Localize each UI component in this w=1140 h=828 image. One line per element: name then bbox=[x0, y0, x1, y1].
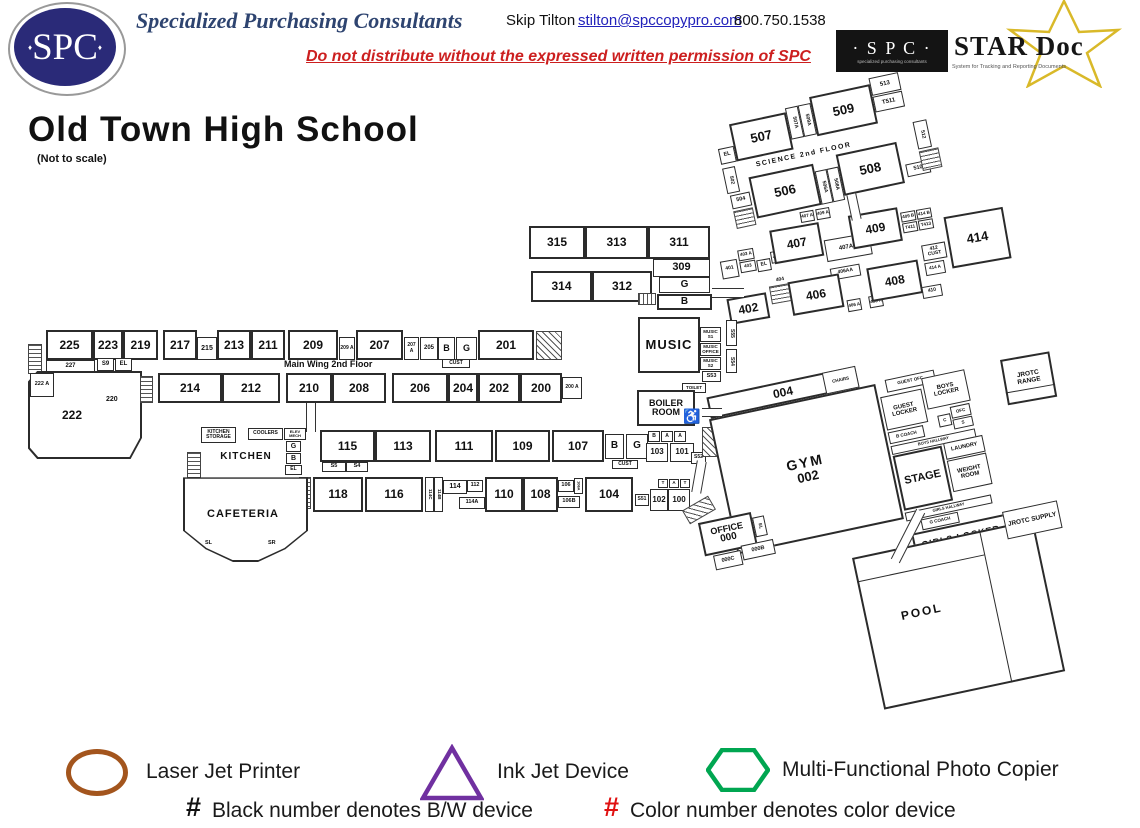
company-name: Specialized Purchasing Consultants bbox=[136, 8, 462, 34]
room-t-1: T bbox=[658, 479, 668, 488]
wheelchair-icon: ♿ bbox=[683, 408, 700, 425]
room-214: 214 bbox=[158, 373, 222, 403]
room-215: 215 bbox=[197, 337, 217, 360]
room-music-s1: MUSIC S1 bbox=[700, 327, 721, 342]
spc-logo-text: SPC bbox=[32, 29, 98, 66]
room-g-100: G bbox=[626, 434, 648, 459]
legend-inkjet-label: Ink Jet Device bbox=[497, 760, 629, 784]
room-313: 313 bbox=[585, 226, 648, 259]
room-t-2: T bbox=[680, 479, 690, 488]
room-music: MUSIC bbox=[638, 317, 700, 373]
room-el-kitchen: EL bbox=[285, 465, 302, 475]
room-202: 202 bbox=[478, 373, 520, 403]
legend-mfp-label: Multi-Functional Photo Copier bbox=[782, 758, 1059, 782]
room-414: 414 bbox=[943, 207, 1011, 269]
stairs[interactable] bbox=[638, 293, 656, 305]
room-315: 315 bbox=[529, 226, 585, 259]
room-401: 401 bbox=[720, 259, 740, 280]
spc-logo: ♦SPC♦ bbox=[8, 2, 126, 96]
room-music-s2: MUSIC S2 bbox=[700, 357, 721, 370]
legend-hash-black: # bbox=[186, 792, 201, 823]
room-a-small-2: A bbox=[674, 431, 686, 442]
distribution-warning: Do not distribute without the expressed … bbox=[306, 48, 811, 66]
contact-email-link[interactable]: stilton@spccopypro.com bbox=[578, 12, 742, 29]
stardoc-spc-text: · S P C · bbox=[852, 38, 931, 59]
stairs[interactable] bbox=[536, 331, 562, 360]
stardoc-spc-sub: specialized purchasing consultants bbox=[857, 59, 927, 64]
room-410: 410 bbox=[921, 284, 943, 299]
legend-bw-note: Black number denotes B/W device bbox=[212, 799, 533, 823]
stairs[interactable] bbox=[28, 344, 42, 374]
photo-copier-icon bbox=[706, 748, 770, 792]
legend-hash-red: # bbox=[604, 792, 619, 823]
room-222a: 222 A bbox=[30, 373, 54, 397]
main-wing-title: Main Wing 2nd Floor bbox=[284, 359, 372, 369]
room-114c: 114C bbox=[425, 477, 434, 512]
jrotc-range-block: JROTC RANGE bbox=[1000, 351, 1060, 407]
room-508: 508 bbox=[836, 142, 905, 196]
ink-jet-icon bbox=[420, 744, 484, 802]
room-223: 223 bbox=[93, 330, 123, 360]
corridor-connector bbox=[691, 460, 706, 493]
room-b-300: B bbox=[657, 294, 712, 310]
room-cafeteria-label: CAFETERIA bbox=[207, 508, 279, 520]
room-114: 114 bbox=[443, 480, 467, 494]
room-g-300: G bbox=[659, 277, 710, 293]
room-cust-main: CUST bbox=[442, 359, 470, 368]
room-507: 507 bbox=[729, 112, 794, 161]
stardoc-name: STAR Doc bbox=[954, 31, 1084, 62]
room-g-main: G bbox=[456, 337, 477, 360]
room-314: 314 bbox=[531, 271, 592, 302]
room-110: 110 bbox=[485, 477, 523, 512]
room-106a: 106A bbox=[574, 478, 583, 494]
room-200: 200 bbox=[520, 373, 562, 403]
room-414a: 414 A bbox=[924, 260, 946, 276]
room-309: 309 bbox=[653, 259, 710, 277]
room-stage: STAGE bbox=[893, 446, 954, 511]
room-412-cust: 412 CUST bbox=[921, 241, 947, 261]
stairs[interactable] bbox=[733, 207, 756, 229]
room-109: 109 bbox=[495, 430, 550, 462]
room-jrotc-range: JROTC RANGE bbox=[1000, 351, 1057, 405]
room-114a: 114A bbox=[459, 497, 485, 509]
page: { "header": { "logo": "SPC", "company": … bbox=[0, 0, 1140, 828]
room-205: 205 bbox=[420, 337, 438, 360]
room-115: 115 bbox=[320, 430, 375, 462]
room-208: 208 bbox=[332, 373, 386, 403]
room-111: 111 bbox=[435, 430, 493, 462]
room-406a: 406 A bbox=[846, 298, 862, 312]
room-206: 206 bbox=[392, 373, 448, 403]
room-g-kitchen: G bbox=[286, 441, 301, 452]
room-504: 504 bbox=[730, 192, 752, 210]
room-music-office: MUSIC OFFICE bbox=[700, 343, 721, 356]
room-107: 107 bbox=[552, 430, 604, 462]
room-114b: 114B bbox=[434, 477, 443, 512]
room-c-gym: C bbox=[937, 413, 952, 427]
room-118: 118 bbox=[313, 477, 363, 512]
room-209: 209 bbox=[288, 330, 338, 360]
room-102: 102 bbox=[650, 489, 668, 511]
room-b-kitchen: B bbox=[286, 453, 301, 464]
room-sl-label: SL bbox=[205, 540, 212, 546]
room-207: 207 bbox=[356, 330, 403, 360]
room-s55: S55 bbox=[726, 320, 737, 346]
room-406: 406 bbox=[787, 273, 844, 316]
room-209a: 209 A bbox=[339, 337, 355, 360]
room-el-main: EL bbox=[115, 358, 132, 371]
room-s4: S4 bbox=[346, 462, 368, 472]
office-number: 000 bbox=[720, 532, 739, 546]
room-213: 213 bbox=[217, 330, 251, 360]
page-subtitle: (Not to scale) bbox=[37, 153, 107, 165]
spc-logo-inner: ♦SPC♦ bbox=[14, 8, 116, 86]
room-el-400: EL bbox=[756, 258, 772, 272]
room-210: 210 bbox=[286, 373, 332, 403]
room-cust-100: CUST bbox=[612, 460, 638, 469]
contact-phone: 800.750.1538 bbox=[734, 12, 826, 29]
corridor-connector bbox=[702, 408, 722, 417]
room-201: 201 bbox=[478, 330, 534, 360]
page-title: Old Town High School bbox=[28, 110, 419, 150]
room-103: 103 bbox=[646, 443, 668, 462]
room-a-small-1: A bbox=[661, 431, 673, 442]
contact-name: Skip Tilton bbox=[506, 12, 575, 29]
room-s5: S5 bbox=[322, 462, 346, 472]
room-200a: 200 A bbox=[562, 377, 582, 399]
room-509: 509 bbox=[809, 84, 878, 136]
room-220-label: 220 bbox=[106, 396, 118, 403]
room-s9: S9 bbox=[97, 358, 114, 371]
room-s51: S51 bbox=[635, 494, 649, 506]
stardoc-tagline: System for Tracking and Reporting Docume… bbox=[952, 64, 1066, 70]
room-403: 403 bbox=[739, 260, 757, 274]
room-502: 502 bbox=[722, 166, 740, 194]
room-112: 112 bbox=[467, 480, 483, 492]
room-116: 116 bbox=[365, 477, 423, 512]
room-t413: T413 bbox=[918, 218, 935, 230]
room-kitchen-storage: KITCHEN STORAGE bbox=[201, 427, 236, 443]
room-104: 104 bbox=[585, 477, 633, 512]
corridor-connector bbox=[712, 288, 744, 298]
room-106: 106 bbox=[558, 480, 574, 492]
room-217: 217 bbox=[163, 330, 197, 360]
legend-color-note: Color number denotes color device bbox=[630, 799, 956, 823]
room-b-main: B bbox=[438, 337, 455, 360]
room-b-100: B bbox=[605, 434, 624, 459]
room-407: 407 bbox=[769, 222, 824, 264]
stairs[interactable] bbox=[140, 376, 153, 403]
room-512: 512 bbox=[913, 119, 933, 149]
laser-jet-icon bbox=[66, 749, 128, 796]
room-elev-mech: ELEV MECH bbox=[284, 428, 306, 440]
room-404-label: 404 bbox=[775, 276, 784, 283]
room-a-1: A bbox=[669, 479, 679, 488]
room-204: 204 bbox=[448, 373, 478, 403]
room-weight: WEIGHT ROOM bbox=[947, 453, 993, 493]
stairs[interactable] bbox=[187, 452, 201, 478]
room-t411: T411 bbox=[902, 221, 919, 233]
gym-number: 002 bbox=[796, 467, 820, 485]
room-b-small: B bbox=[648, 431, 660, 442]
room-sr-label: SR bbox=[268, 540, 276, 546]
stairs[interactable] bbox=[919, 147, 943, 171]
room-207a: 207 A bbox=[404, 337, 419, 360]
legend-laser-label: Laser Jet Printer bbox=[146, 760, 300, 784]
room-311: 311 bbox=[648, 226, 710, 259]
room-coolers: COOLERS bbox=[248, 428, 283, 440]
room-225: 225 bbox=[46, 330, 93, 360]
room-211: 211 bbox=[251, 330, 285, 360]
corridor-connector bbox=[306, 403, 316, 432]
room-408: 408 bbox=[866, 259, 923, 302]
room-106b: 106B bbox=[558, 496, 580, 508]
room-212: 212 bbox=[222, 373, 280, 403]
room-kitchen: KITCHEN bbox=[215, 443, 277, 471]
room-222-label: 222 bbox=[62, 408, 82, 422]
room-219: 219 bbox=[123, 330, 158, 360]
room-113: 113 bbox=[375, 430, 431, 462]
room-108: 108 bbox=[523, 477, 558, 512]
